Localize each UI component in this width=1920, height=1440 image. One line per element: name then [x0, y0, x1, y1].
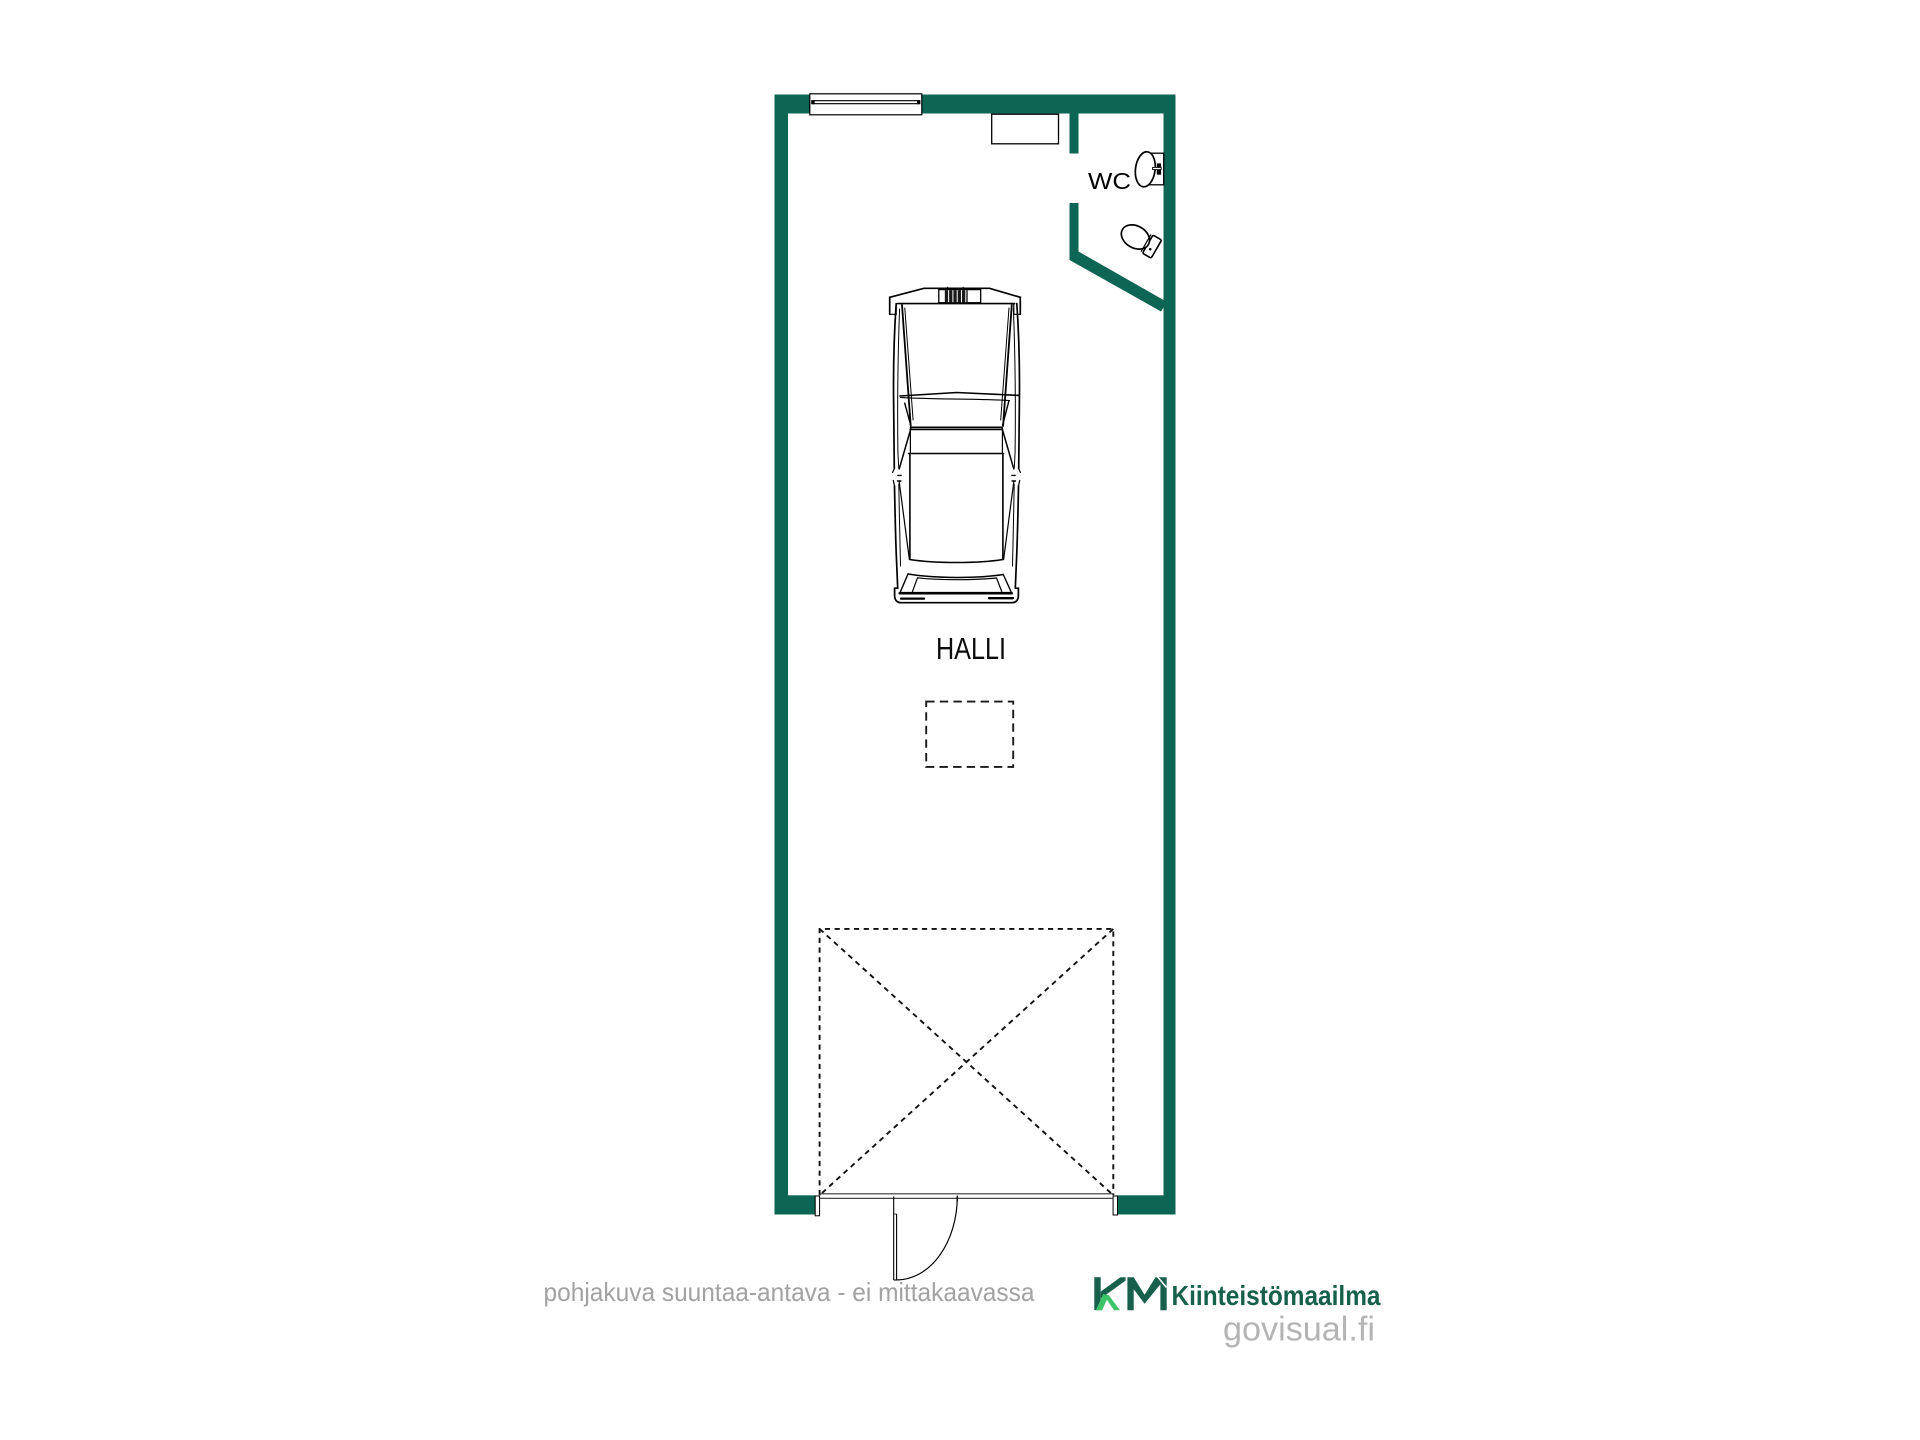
- svg-text:govisual.fi: govisual.fi: [1223, 1311, 1375, 1349]
- svg-text:pohjakuva suuntaa-antava - ei: pohjakuva suuntaa-antava - ei mittakaava…: [544, 1277, 1035, 1307]
- svg-text:WC: WC: [1088, 168, 1131, 194]
- svg-text:Kiinteistömaailma: Kiinteistömaailma: [1172, 1280, 1382, 1311]
- svg-text:HALLI: HALLI: [936, 632, 1006, 666]
